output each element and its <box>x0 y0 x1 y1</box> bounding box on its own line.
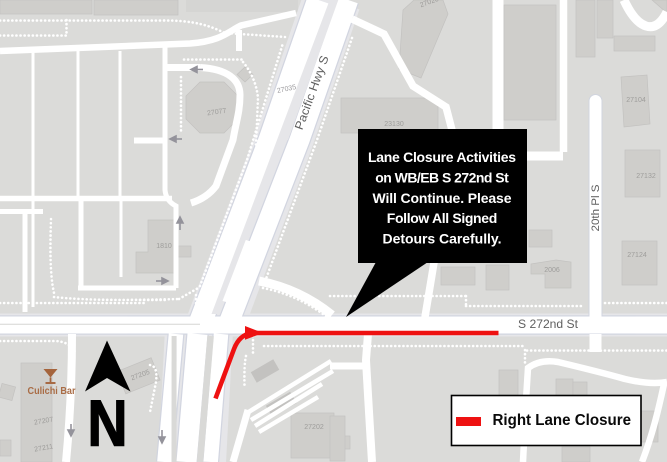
svg-text:S 272nd St: S 272nd St <box>518 317 579 331</box>
svg-text:1810: 1810 <box>156 243 172 250</box>
svg-text:Will Continue. Please: Will Continue. Please <box>373 190 512 206</box>
svg-text:Culichi Bar: Culichi Bar <box>28 386 76 397</box>
svg-text:27202: 27202 <box>304 424 324 431</box>
svg-text:27132: 27132 <box>636 173 656 180</box>
svg-text:2006: 2006 <box>544 267 560 274</box>
svg-text:Detours Carefully.: Detours Carefully. <box>383 231 502 247</box>
svg-text:23130: 23130 <box>384 121 404 128</box>
svg-text:Lane Closure Activities: Lane Closure Activities <box>368 149 516 165</box>
svg-text:27104: 27104 <box>626 97 646 104</box>
svg-text:N: N <box>88 387 128 460</box>
svg-text:on WB/EB S 272nd St: on WB/EB S 272nd St <box>375 169 509 185</box>
svg-text:27124: 27124 <box>627 252 647 259</box>
svg-text:Right Lane Closure: Right Lane Closure <box>493 412 632 429</box>
svg-text:Follow All Signed: Follow All Signed <box>387 210 498 226</box>
svg-text:20th Pl S: 20th Pl S <box>590 185 602 232</box>
